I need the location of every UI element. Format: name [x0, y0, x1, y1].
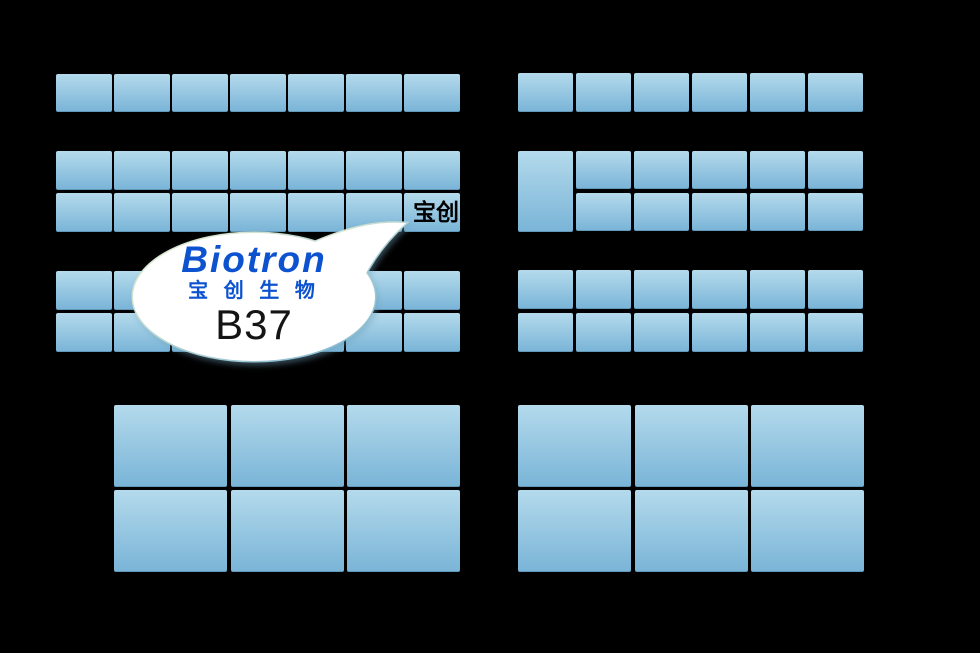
- booth-cell: [692, 193, 747, 231]
- booth-cell: [635, 490, 748, 572]
- booth-cell: [518, 405, 631, 487]
- booth-cell: [634, 193, 689, 231]
- booth-cell: [114, 490, 227, 572]
- booth-cell: [635, 405, 748, 487]
- booth-cell: [634, 270, 689, 309]
- booth-cell: [114, 74, 170, 112]
- booth-cell: [56, 313, 112, 352]
- booth-cell: [750, 313, 805, 352]
- booth-cell: [808, 151, 863, 189]
- booth-cell: [56, 151, 112, 190]
- booth-cell: [692, 270, 747, 309]
- booth-cell: [346, 151, 402, 190]
- booth-cell: [750, 270, 805, 309]
- booth-cell: [750, 193, 805, 231]
- booth-cell: [404, 74, 460, 112]
- booth-cell: [518, 270, 573, 309]
- booth-cell: [576, 73, 631, 112]
- booth-cell: [518, 313, 573, 352]
- booth-cell: [576, 270, 631, 309]
- booth-cell: [347, 405, 460, 487]
- booth-cell: [751, 490, 864, 572]
- booth-cell: [576, 313, 631, 352]
- booth-cell: [518, 151, 573, 232]
- booth-cell: [56, 193, 112, 232]
- booth-cell: [576, 193, 631, 231]
- booth-cell: [634, 73, 689, 112]
- booth-cell: [346, 74, 402, 112]
- booth-cell: [172, 74, 228, 112]
- booth-cell: [750, 151, 805, 189]
- booth-cell: [288, 151, 344, 190]
- booth-cell: [808, 193, 863, 231]
- booth-cell: [114, 151, 170, 190]
- booth-cell: [347, 490, 460, 572]
- booth-cell: [808, 270, 863, 309]
- booth-cell: [808, 73, 863, 112]
- booth-cell: [231, 490, 344, 572]
- booth-cell: [692, 313, 747, 352]
- booth-cell: [751, 405, 864, 487]
- booth-cell: [172, 151, 228, 190]
- booth-cell: [231, 405, 344, 487]
- booth-cell: [692, 73, 747, 112]
- booth-cell: [518, 73, 573, 112]
- booth-cell: [750, 73, 805, 112]
- callout-brand-chinese: 宝 创 生 物: [134, 281, 374, 301]
- booth-cell: [576, 151, 631, 189]
- booth-cell: [56, 271, 112, 310]
- booth-cell: [56, 74, 112, 112]
- booth-cell: [692, 151, 747, 189]
- booth-cell: [634, 151, 689, 189]
- booth-cell: [114, 405, 227, 487]
- booth-cell: [808, 313, 863, 352]
- booth-cell: [518, 490, 631, 572]
- booth-cell: [404, 151, 460, 190]
- booth-cell: [288, 74, 344, 112]
- callout-brand-english: Biotron: [134, 241, 374, 278]
- exhibition-floorplan: 宝创 Biotron 宝 创 生 物 B37: [0, 0, 980, 653]
- booth-cell: [634, 313, 689, 352]
- booth-cell: [230, 151, 286, 190]
- callout-booth-number: B37: [134, 304, 374, 346]
- booth-cell: [230, 74, 286, 112]
